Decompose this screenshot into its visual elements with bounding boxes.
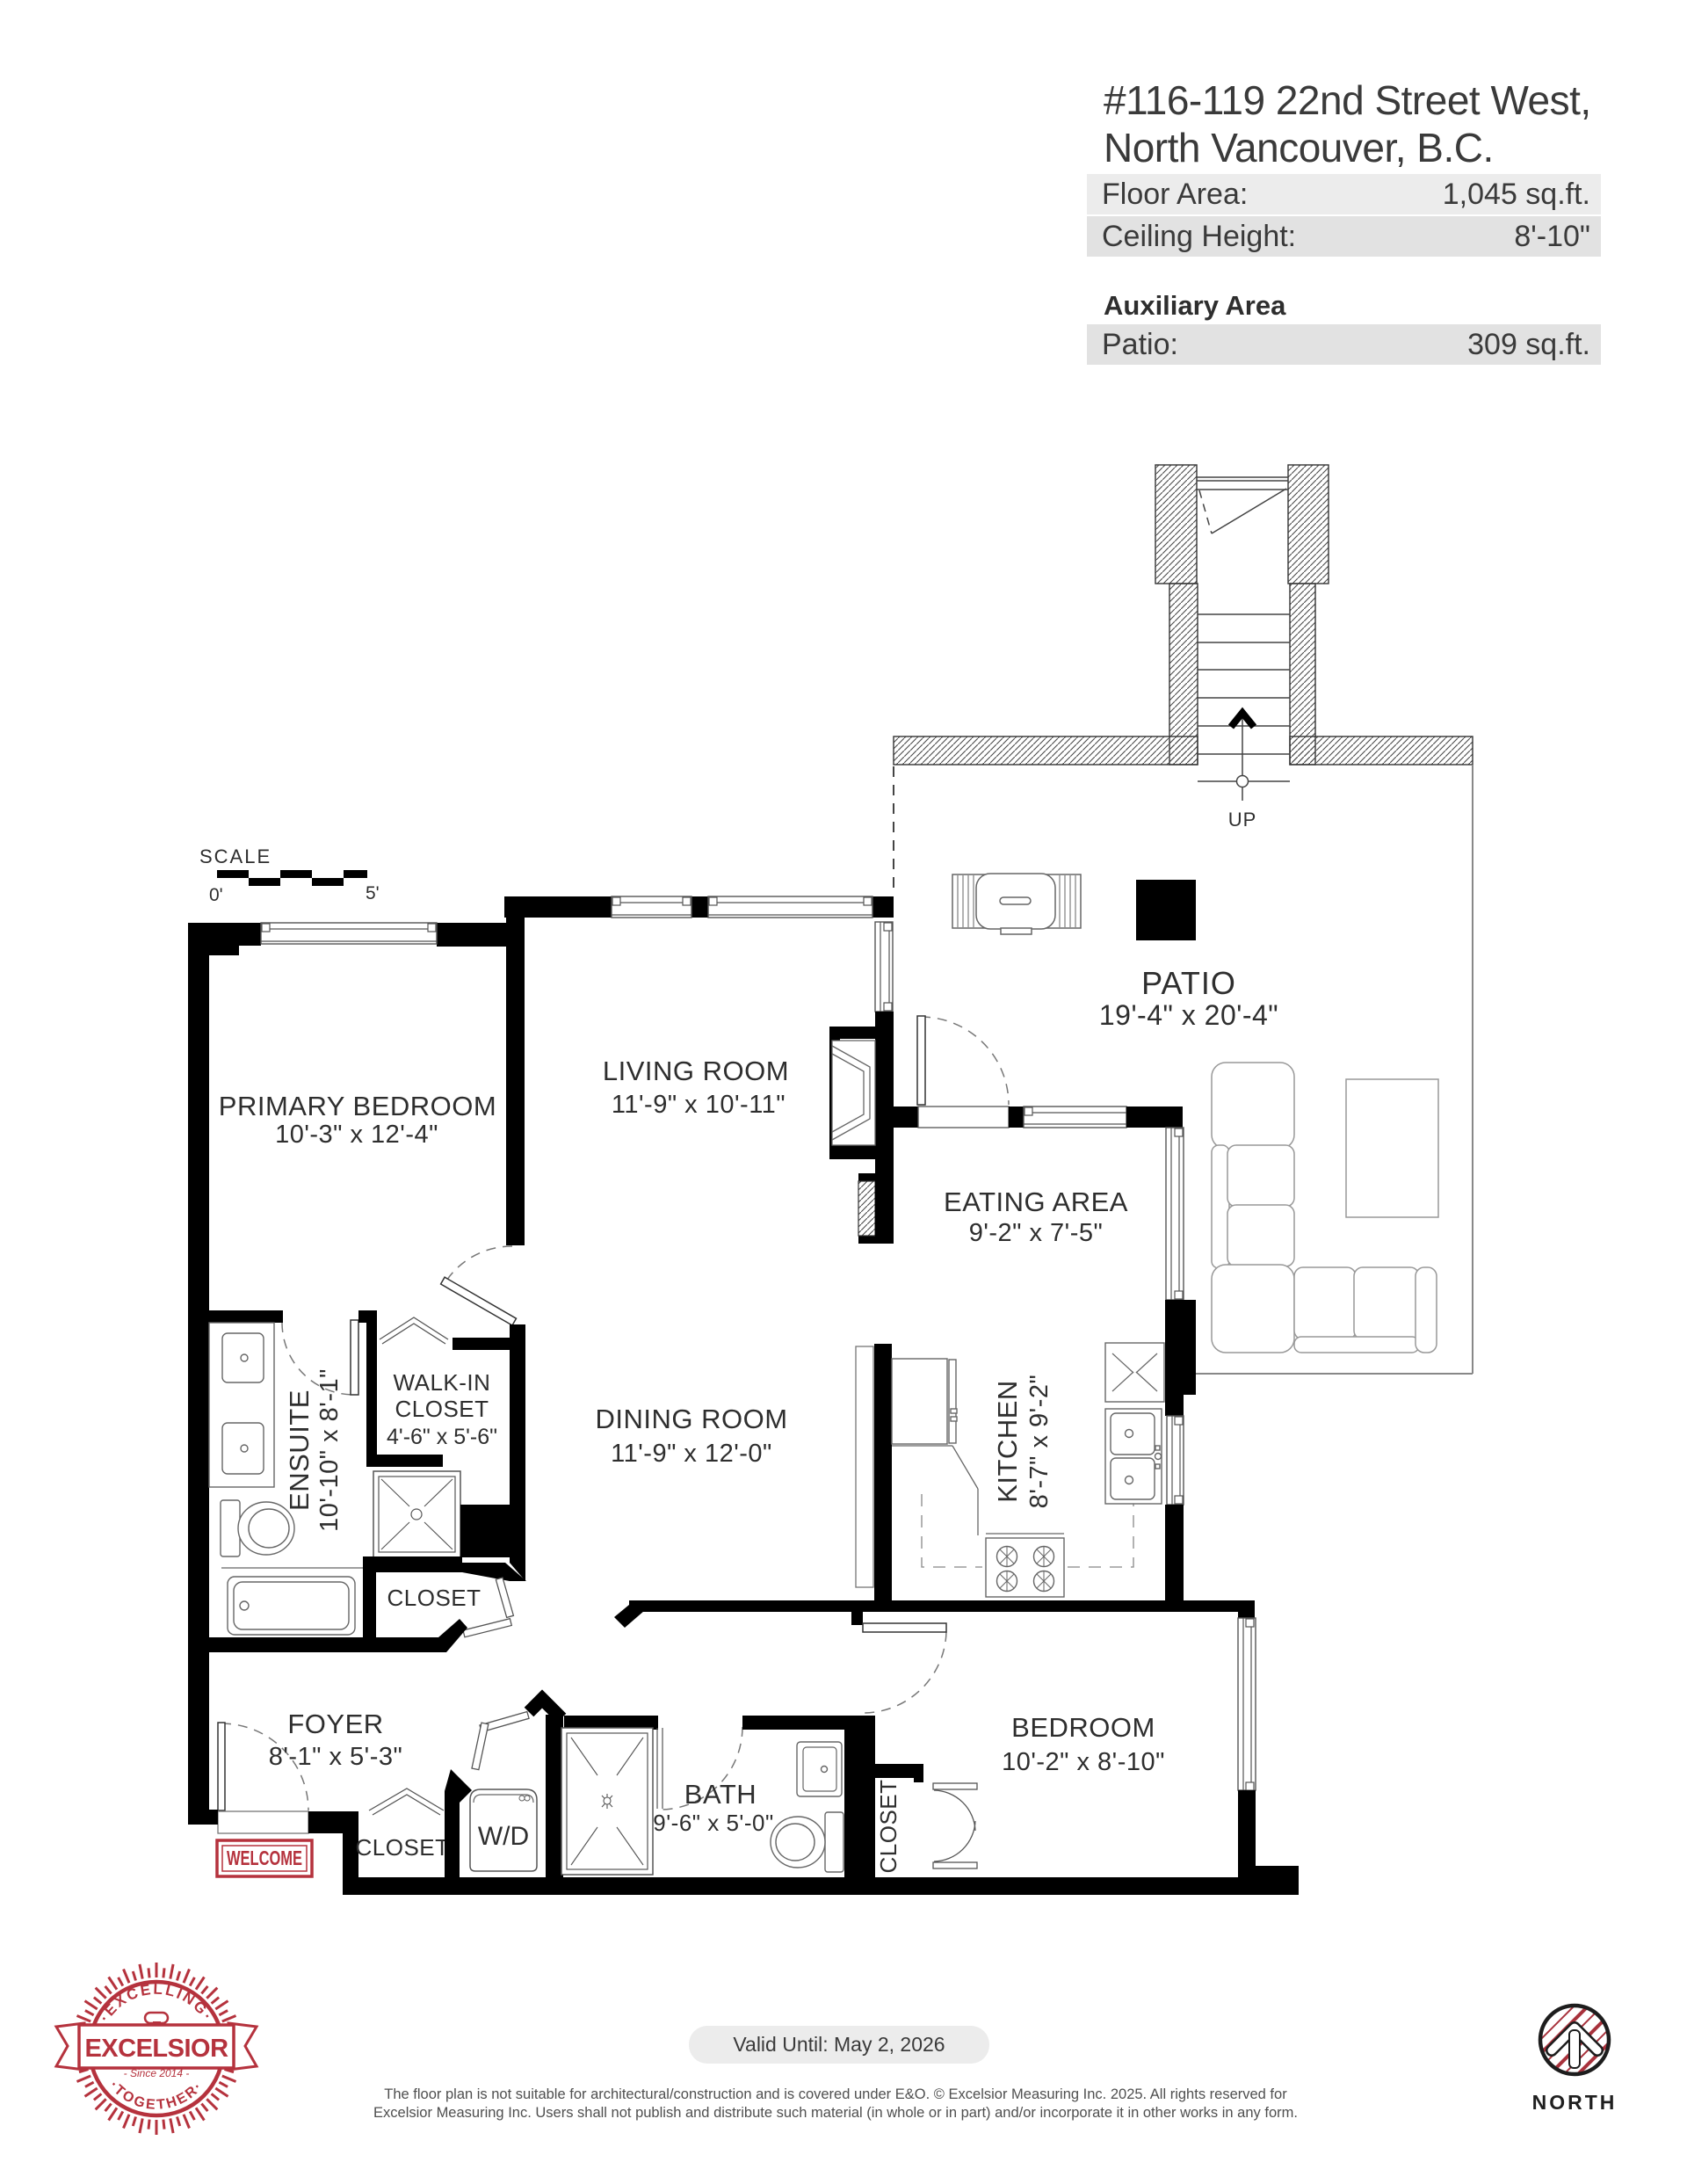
- svg-text:0': 0': [209, 885, 223, 905]
- svg-text:Excelsior Measuring Inc. Users: Excelsior Measuring Inc. Users shall not…: [373, 2105, 1298, 2121]
- svg-text:Ceiling Height:: Ceiling Height:: [1102, 220, 1296, 253]
- svg-text:ENSUITE: ENSUITE: [284, 1389, 315, 1511]
- svg-text:CLOSET: CLOSET: [355, 1834, 449, 1861]
- svg-text:8'-7" x 9'-2": 8'-7" x 9'-2": [1025, 1375, 1053, 1509]
- svg-text:WALK-IN: WALK-IN: [394, 1369, 491, 1396]
- svg-text:EATING AREA: EATING AREA: [944, 1186, 1128, 1217]
- svg-text:BATH: BATH: [684, 1779, 757, 1810]
- svg-text:The floor plan is not suitable: The floor plan is not suitable for archi…: [384, 2086, 1287, 2102]
- svg-text:8'-1" x 5'-3": 8'-1" x 5'-3": [269, 1743, 403, 1771]
- svg-text:PRIMARY BEDROOM: PRIMARY BEDROOM: [219, 1091, 496, 1121]
- svg-text:4'-6" x 5'-6": 4'-6" x 5'-6": [387, 1425, 497, 1449]
- svg-text:9'-2" x 7'-5": 9'-2" x 7'-5": [969, 1219, 1104, 1247]
- svg-text:SCALE: SCALE: [199, 845, 272, 867]
- svg-text:Patio:: Patio:: [1102, 328, 1178, 361]
- svg-text:UP: UP: [1228, 809, 1257, 831]
- svg-text:EXCELSIOR: EXCELSIOR: [84, 2035, 228, 2063]
- svg-text:5': 5': [366, 883, 380, 903]
- svg-text:NORTH: NORTH: [1532, 2091, 1618, 2114]
- svg-text:10'-2" x 8'-10": 10'-2" x 8'-10": [1002, 1748, 1165, 1776]
- svg-text:Auxiliary Area: Auxiliary Area: [1104, 290, 1286, 321]
- svg-text:PATIO: PATIO: [1141, 965, 1236, 1001]
- svg-text:8'-10": 8'-10": [1514, 220, 1590, 253]
- svg-text:1,045 sq.ft.: 1,045 sq.ft.: [1443, 178, 1590, 211]
- svg-text:9'-6" x 5'-0": 9'-6" x 5'-0": [653, 1810, 774, 1836]
- svg-text:Floor Area:: Floor Area:: [1102, 178, 1248, 211]
- svg-text:#116-119 22nd Street West,: #116-119 22nd Street West,: [1104, 77, 1591, 123]
- svg-text:BEDROOM: BEDROOM: [1011, 1712, 1155, 1743]
- svg-text:W/D: W/D: [478, 1822, 529, 1851]
- svg-text:- Since 2014 -: - Since 2014 -: [124, 2067, 190, 2079]
- svg-text:FOYER: FOYER: [287, 1709, 383, 1739]
- svg-text:10'-3" x 12'-4": 10'-3" x 12'-4": [275, 1121, 438, 1149]
- svg-text:19'-4" x 20'-4": 19'-4" x 20'-4": [1099, 999, 1278, 1031]
- svg-text:DINING ROOM: DINING ROOM: [595, 1404, 787, 1434]
- svg-text:309 sq.ft.: 309 sq.ft.: [1467, 328, 1590, 361]
- svg-text:LIVING ROOM: LIVING ROOM: [603, 1056, 789, 1086]
- svg-text:North Vancouver, B.C.: North Vancouver, B.C.: [1104, 125, 1494, 171]
- svg-text:11'-9" x 12'-0": 11'-9" x 12'-0": [611, 1440, 772, 1468]
- svg-text:10'-10" x 8'-1": 10'-10" x 8'-1": [315, 1368, 344, 1532]
- svg-text:11'-9" x 10'-11": 11'-9" x 10'-11": [612, 1091, 786, 1119]
- svg-text:CLOSET: CLOSET: [875, 1779, 901, 1873]
- svg-text:CLOSET: CLOSET: [387, 1585, 481, 1611]
- svg-text:WELCOME: WELCOME: [227, 1847, 302, 1869]
- svg-text:CLOSET: CLOSET: [395, 1396, 489, 1422]
- svg-text:Valid Until: May 2, 2026: Valid Until: May 2, 2026: [733, 2033, 945, 2056]
- svg-text:KITCHEN: KITCHEN: [992, 1380, 1023, 1503]
